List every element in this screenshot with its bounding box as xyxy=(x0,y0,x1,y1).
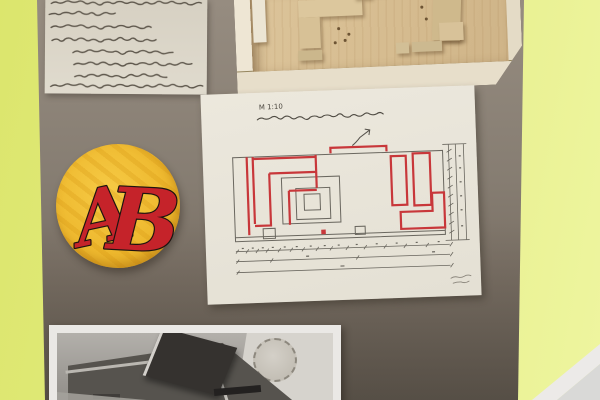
ab-letters: A B xyxy=(56,144,180,268)
scale-label: M 1:10 xyxy=(259,103,283,112)
corner-note xyxy=(451,275,471,283)
vertical-dimension-strip xyxy=(442,144,469,241)
model-bar-block xyxy=(412,41,442,52)
box-wood-floor xyxy=(249,0,508,72)
model-base-block xyxy=(298,50,322,61)
model-l-block-side xyxy=(299,17,321,49)
wood-knot xyxy=(420,6,423,9)
red-marker-walls xyxy=(246,144,445,237)
letter-b: B xyxy=(102,168,180,268)
model-l-block-top xyxy=(298,0,363,18)
ab-logo-badge: A B xyxy=(56,144,180,268)
floor-plan-sheet: M 1:10 xyxy=(200,85,481,304)
wood-knot xyxy=(334,41,337,44)
wood-knot xyxy=(425,17,428,20)
photo-image xyxy=(57,333,333,400)
model-low-block xyxy=(439,22,464,41)
floor-plan-drawing: M 1:10 xyxy=(200,85,481,304)
wood-knot xyxy=(337,27,340,30)
handwriting-sheet xyxy=(45,0,208,95)
display-board-photo: A B M 1:10 xyxy=(0,0,600,400)
model-cube xyxy=(396,42,409,54)
wood-knot xyxy=(344,39,347,42)
model-slat xyxy=(252,0,267,43)
wooden-model-box xyxy=(234,0,524,95)
north-arrow xyxy=(352,129,371,146)
wood-knot xyxy=(347,33,350,36)
printed-photo xyxy=(49,325,341,400)
handwriting-lines xyxy=(45,0,208,95)
bottom-dimension-chains xyxy=(236,241,454,275)
names-handwriting xyxy=(257,112,383,121)
